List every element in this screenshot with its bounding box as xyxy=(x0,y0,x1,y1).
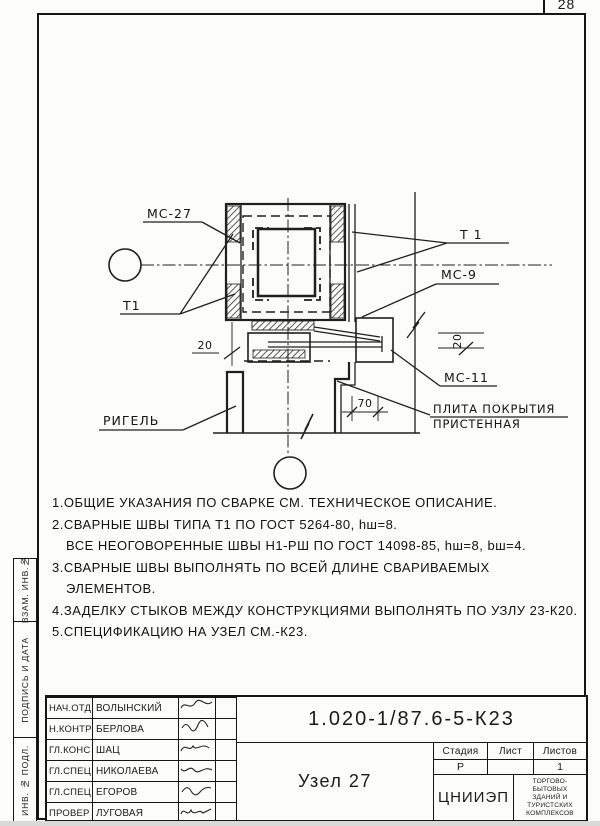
organization-name-line: ЗДАНИЙ И xyxy=(532,794,567,802)
scan-edge xyxy=(0,821,600,826)
axis-marker-circle-left xyxy=(109,249,141,281)
signature-mark xyxy=(179,782,216,802)
note-line: ЭЛЕМЕНТОВ. xyxy=(52,578,588,600)
signature-mark xyxy=(179,740,216,760)
person-role: НАЧ.ОТД. xyxy=(47,698,93,718)
ground-break-mark xyxy=(301,414,313,439)
note-line: 5.СПЕЦИФИКАЦИЮ НА УЗЕЛ СМ.-К23. xyxy=(52,621,588,643)
person-name: ШАЦ xyxy=(93,740,179,760)
note-line: ВСЕ НЕОГОВОРЕННЫЕ ШВЫ Н1-РШ ПО ГОСТ 1409… xyxy=(52,535,588,557)
person-name: ЛУГОВАЯ xyxy=(93,803,179,823)
table-row: ГЛ.СПЕЦ ЕГОРОВ xyxy=(47,782,236,803)
note-line: 4.ЗАДЕЛКУ СТЫКОВ МЕЖДУ КОНСТРУКЦИЯМИ ВЫП… xyxy=(52,600,588,622)
person-role: ПРОВЕР xyxy=(47,803,93,823)
organization-name-line: ТОРГОВО- xyxy=(533,778,568,786)
person-role: ГЛ.СПЕЦ xyxy=(47,782,93,802)
weld-plate-hatch xyxy=(227,284,240,318)
table-row: ГЛ.СПЕЦ НИКОЛАЕВА xyxy=(47,761,236,782)
person-name: НИКОЛАЕВА xyxy=(93,761,179,781)
leader-line xyxy=(357,243,447,272)
document-number: 1.020-1/87.6-5-К23 xyxy=(237,697,586,743)
signature-mark xyxy=(179,761,216,781)
weld-plate-hatch xyxy=(331,206,344,242)
sheets-value: 1 xyxy=(534,760,586,774)
date-cell xyxy=(216,740,236,760)
dimension-70: 70 xyxy=(358,397,373,410)
note-line: 3.СВАРНЫЕ ШВЫ ВЫПОЛНЯТЬ ПО ВСЕЙ ДЛИНЕ СВ… xyxy=(52,557,588,579)
column-outline xyxy=(226,204,345,320)
stage-value: Р xyxy=(434,760,488,774)
callout-mc9: МС-9 xyxy=(441,267,477,282)
stage-sheet-table: Стадия Лист Листов Р 1 ЦНИИЭП ТОРГОВО- Б… xyxy=(434,743,586,820)
person-role: ГЛ.СПЕЦ xyxy=(47,761,93,781)
person-name: БЕРЛОВА xyxy=(93,719,179,739)
organization-name-line: БЫТОВЫХ xyxy=(532,786,567,794)
callout-mc11: МС-11 xyxy=(444,370,489,385)
general-notes: 1.ОБЩИЕ УКАЗАНИЯ ПО СВАРКЕ СМ. ТЕХНИЧЕСК… xyxy=(52,492,588,643)
panel-step xyxy=(335,362,349,433)
callout-t1-right: Т 1 xyxy=(459,227,483,242)
date-cell xyxy=(216,698,236,718)
person-role: ГЛ.КОНС xyxy=(47,740,93,760)
leader-line xyxy=(352,232,447,243)
organization-abbr: ЦНИИЭП xyxy=(434,775,514,820)
beam-pier xyxy=(227,372,243,433)
weld-seam-hatch xyxy=(252,321,314,330)
drawing-title: Узел 27 xyxy=(237,743,434,820)
date-cell xyxy=(216,782,236,802)
weld-plate-hatch xyxy=(331,284,344,318)
corner-bracket xyxy=(253,228,269,250)
title-block-right: 1.020-1/87.6-5-К23 Узел 27 Стадия Лист Л… xyxy=(237,697,586,820)
organization: ЦНИИЭП ТОРГОВО- БЫТОВЫХ ЗДАНИЙ И ТУРИСТС… xyxy=(434,775,586,820)
table-row: НАЧ.ОТД. ВОЛЫНСКИЙ xyxy=(47,698,236,719)
person-name: ЕГОРОВ xyxy=(93,782,179,802)
note-line: 2.СВАРНЫЕ ШВЫ ТИПА Т1 ПО ГОСТ 5264-80, h… xyxy=(52,514,588,536)
organization-name-line: КОМПЛЕКСОВ xyxy=(526,810,574,818)
signature-mark xyxy=(179,719,216,739)
weld-seam-hatch xyxy=(253,350,305,358)
title-block: НАЧ.ОТД. ВОЛЫНСКИЙ Н.КОНТР БЕРЛОВА ГЛ.КО… xyxy=(45,695,588,822)
date-cell xyxy=(216,719,236,739)
date-cell xyxy=(216,761,236,781)
column-header-stage: Стадия xyxy=(434,743,488,759)
signature-mark xyxy=(179,698,216,718)
callout-t1-left: Т1 xyxy=(122,298,141,313)
axis-marker-circle-bottom xyxy=(274,457,306,489)
date-cell xyxy=(216,803,236,823)
hidden-edge-rect xyxy=(243,216,330,312)
core-opening xyxy=(258,229,315,296)
table-row: ГЛ.КОНС ШАЦ xyxy=(47,740,236,761)
signature-mark xyxy=(179,803,216,823)
organization-name: ТОРГОВО- БЫТОВЫХ ЗДАНИЙ И ТУРИСТСКИХ КОМ… xyxy=(514,775,586,820)
table-row: Н.КОНТР БЕРЛОВА xyxy=(47,719,236,740)
leader-line xyxy=(337,381,430,415)
callout-beam: РИГЕЛЬ xyxy=(103,413,159,428)
person-role: Н.КОНТР xyxy=(47,719,93,739)
column-header-sheet: Лист xyxy=(488,743,534,759)
note-line: 1.ОБЩИЕ УКАЗАНИЯ ПО СВАРКЕ СМ. ТЕХНИЧЕСК… xyxy=(52,492,588,514)
callout-plate-line2: ПРИСТЕННАЯ xyxy=(433,417,521,431)
dimension-20-right: 20 xyxy=(451,334,464,349)
drawing-sheet: 28 ВЗАМ. ИНВ.№ ПОДПИСЬ И ДАТА ИНВ. № ПОД… xyxy=(0,0,600,826)
organization-name-line: ТУРИСТСКИХ xyxy=(527,802,573,810)
signature-table: НАЧ.ОТД. ВОЛЫНСКИЙ Н.КОНТР БЕРЛОВА ГЛ.КО… xyxy=(47,697,237,820)
corner-bracket xyxy=(304,228,320,250)
column-header-sheets: Листов xyxy=(534,743,586,759)
callout-plate-line1: ПЛИТА ПОКРЫТИЯ xyxy=(433,402,555,416)
dimension-20-left: 20 xyxy=(198,339,213,352)
callout-mc27: МС-27 xyxy=(147,206,192,221)
break-mark xyxy=(407,312,425,338)
person-name: ВОЛЫНСКИЙ xyxy=(93,698,179,718)
sheet-value xyxy=(488,760,534,774)
